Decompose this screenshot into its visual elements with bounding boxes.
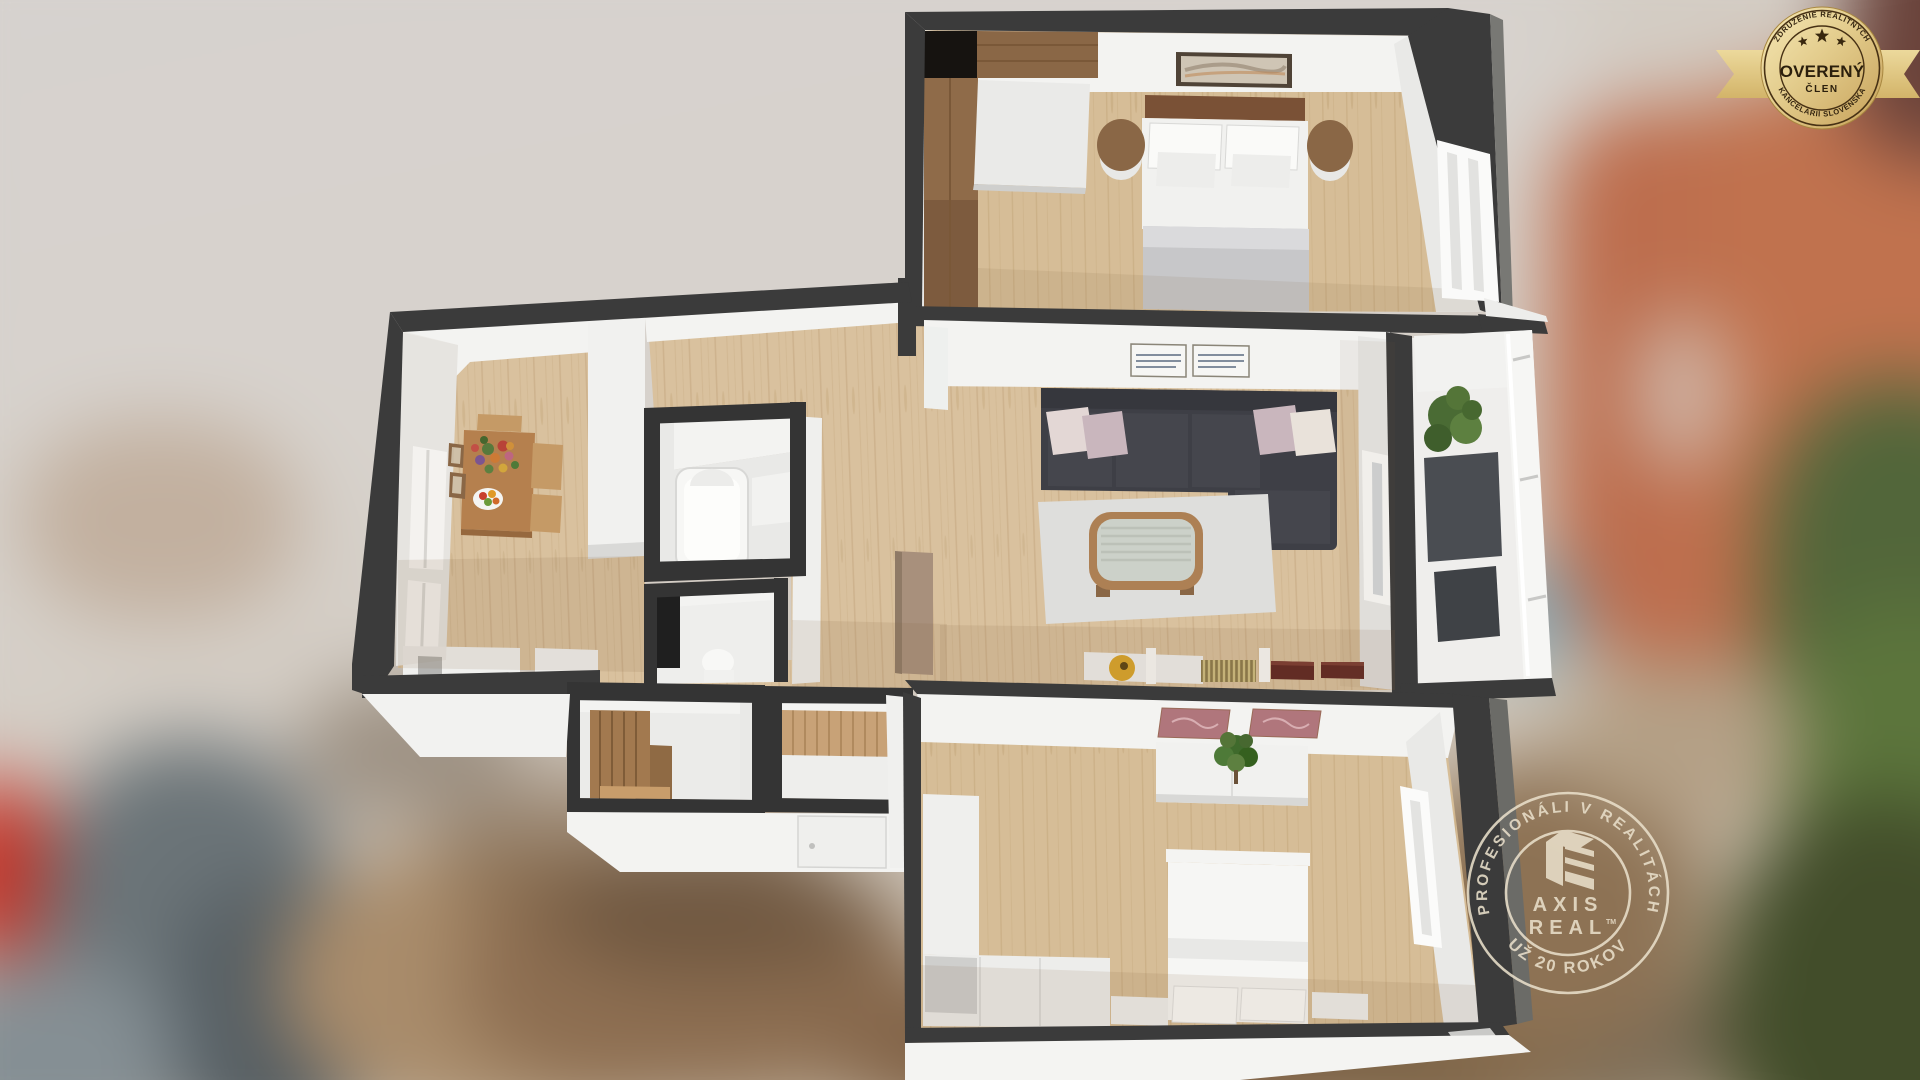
svg-text:TM: TM: [1606, 919, 1616, 926]
svg-text:ČLEN: ČLEN: [1805, 82, 1838, 95]
svg-text:OVERENÝ: OVERENÝ: [1780, 62, 1865, 81]
svg-text:REAL: REAL: [1529, 917, 1607, 939]
svg-text:AXIS: AXIS: [1533, 894, 1604, 916]
